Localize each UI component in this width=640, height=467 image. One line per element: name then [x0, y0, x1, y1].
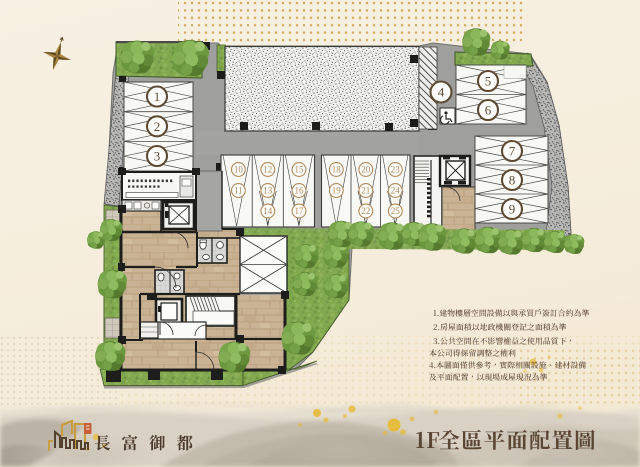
svg-text:25: 25 — [391, 206, 401, 216]
svg-text:14: 14 — [263, 206, 273, 216]
svg-text:18: 18 — [332, 165, 342, 175]
svg-text:22: 22 — [361, 206, 370, 216]
svg-text:24: 24 — [391, 186, 401, 196]
svg-text:4: 4 — [438, 84, 445, 99]
svg-text:11: 11 — [234, 186, 243, 196]
svg-text:17: 17 — [295, 206, 305, 216]
svg-text:10: 10 — [234, 165, 244, 175]
svg-text:15: 15 — [295, 165, 305, 175]
svg-text:20: 20 — [361, 165, 371, 175]
svg-text:5: 5 — [485, 73, 492, 88]
svg-text:23: 23 — [391, 165, 401, 175]
svg-text:19: 19 — [332, 186, 342, 196]
svg-text:13: 13 — [263, 186, 273, 196]
svg-text:9: 9 — [509, 201, 516, 216]
svg-text:3: 3 — [154, 148, 161, 163]
svg-text:21: 21 — [361, 186, 370, 196]
svg-text:6: 6 — [485, 102, 492, 117]
svg-text:2: 2 — [154, 119, 161, 134]
svg-text:16: 16 — [295, 186, 305, 196]
svg-text:12: 12 — [263, 165, 272, 175]
svg-text:7: 7 — [509, 143, 516, 158]
svg-text:8: 8 — [509, 172, 516, 187]
svg-text:1: 1 — [154, 89, 161, 104]
